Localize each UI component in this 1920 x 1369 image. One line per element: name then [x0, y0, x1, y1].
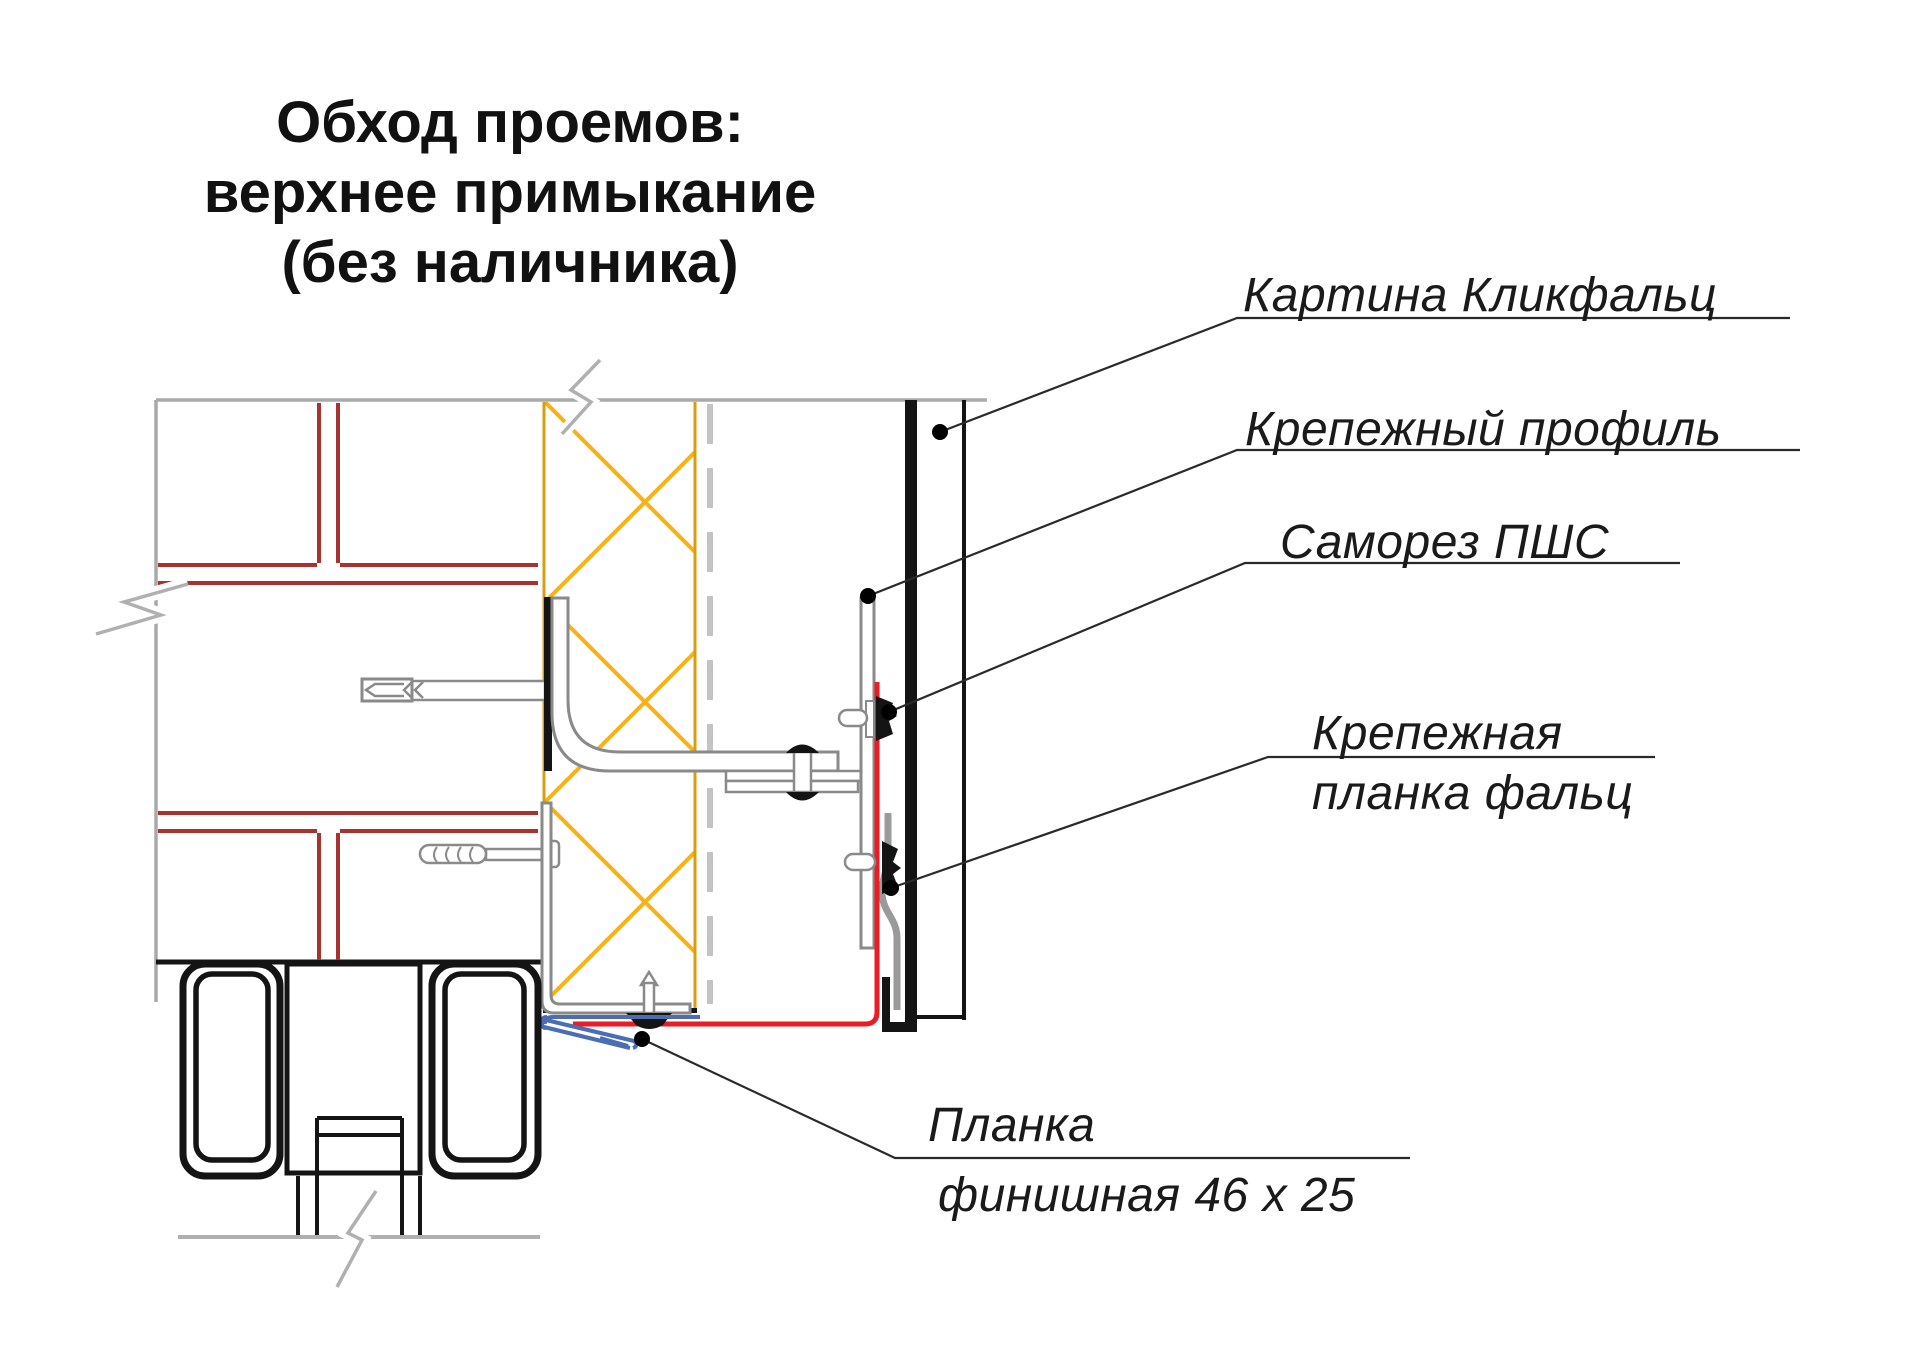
leader-dot-falz: [883, 880, 899, 896]
callout-falz-label-line1: Крепежная: [1312, 706, 1563, 761]
leader-dot-screw: [881, 704, 897, 720]
break-mark-wall-left: [96, 584, 188, 634]
window-frame: [183, 964, 538, 1237]
leader-dot-panel: [932, 424, 948, 440]
title-line-3: (без наличника): [150, 228, 870, 298]
drawing-title: Обход проемов: верхнее примыкание (без н…: [150, 88, 870, 298]
callout-profile-label: Крепежный профиль: [1245, 402, 1721, 457]
title-line-1: Обход проемов:: [150, 88, 870, 158]
callout-falz-label-line2: планка фальц: [1312, 766, 1633, 821]
drawing-sheet: Обход проемов: верхнее примыкание (без н…: [0, 0, 1920, 1369]
anchor-bolt: [362, 679, 545, 701]
title-line-2: верхнее примыкание: [150, 158, 870, 228]
callout-screw-label: Саморез ПШС: [1280, 515, 1609, 570]
callout-finish-label-line2: финишная 46 х 25: [938, 1168, 1355, 1223]
leader-dot-finish: [634, 1031, 650, 1047]
fastening-profile: [861, 598, 874, 948]
leader-screw: [889, 563, 1680, 712]
leader-dot-profile: [860, 588, 876, 604]
callout-panel-label: Картина Кликфальц: [1243, 268, 1717, 323]
callout-finish-label-line1: Планка: [928, 1098, 1095, 1153]
frame-dowel: [420, 841, 559, 867]
